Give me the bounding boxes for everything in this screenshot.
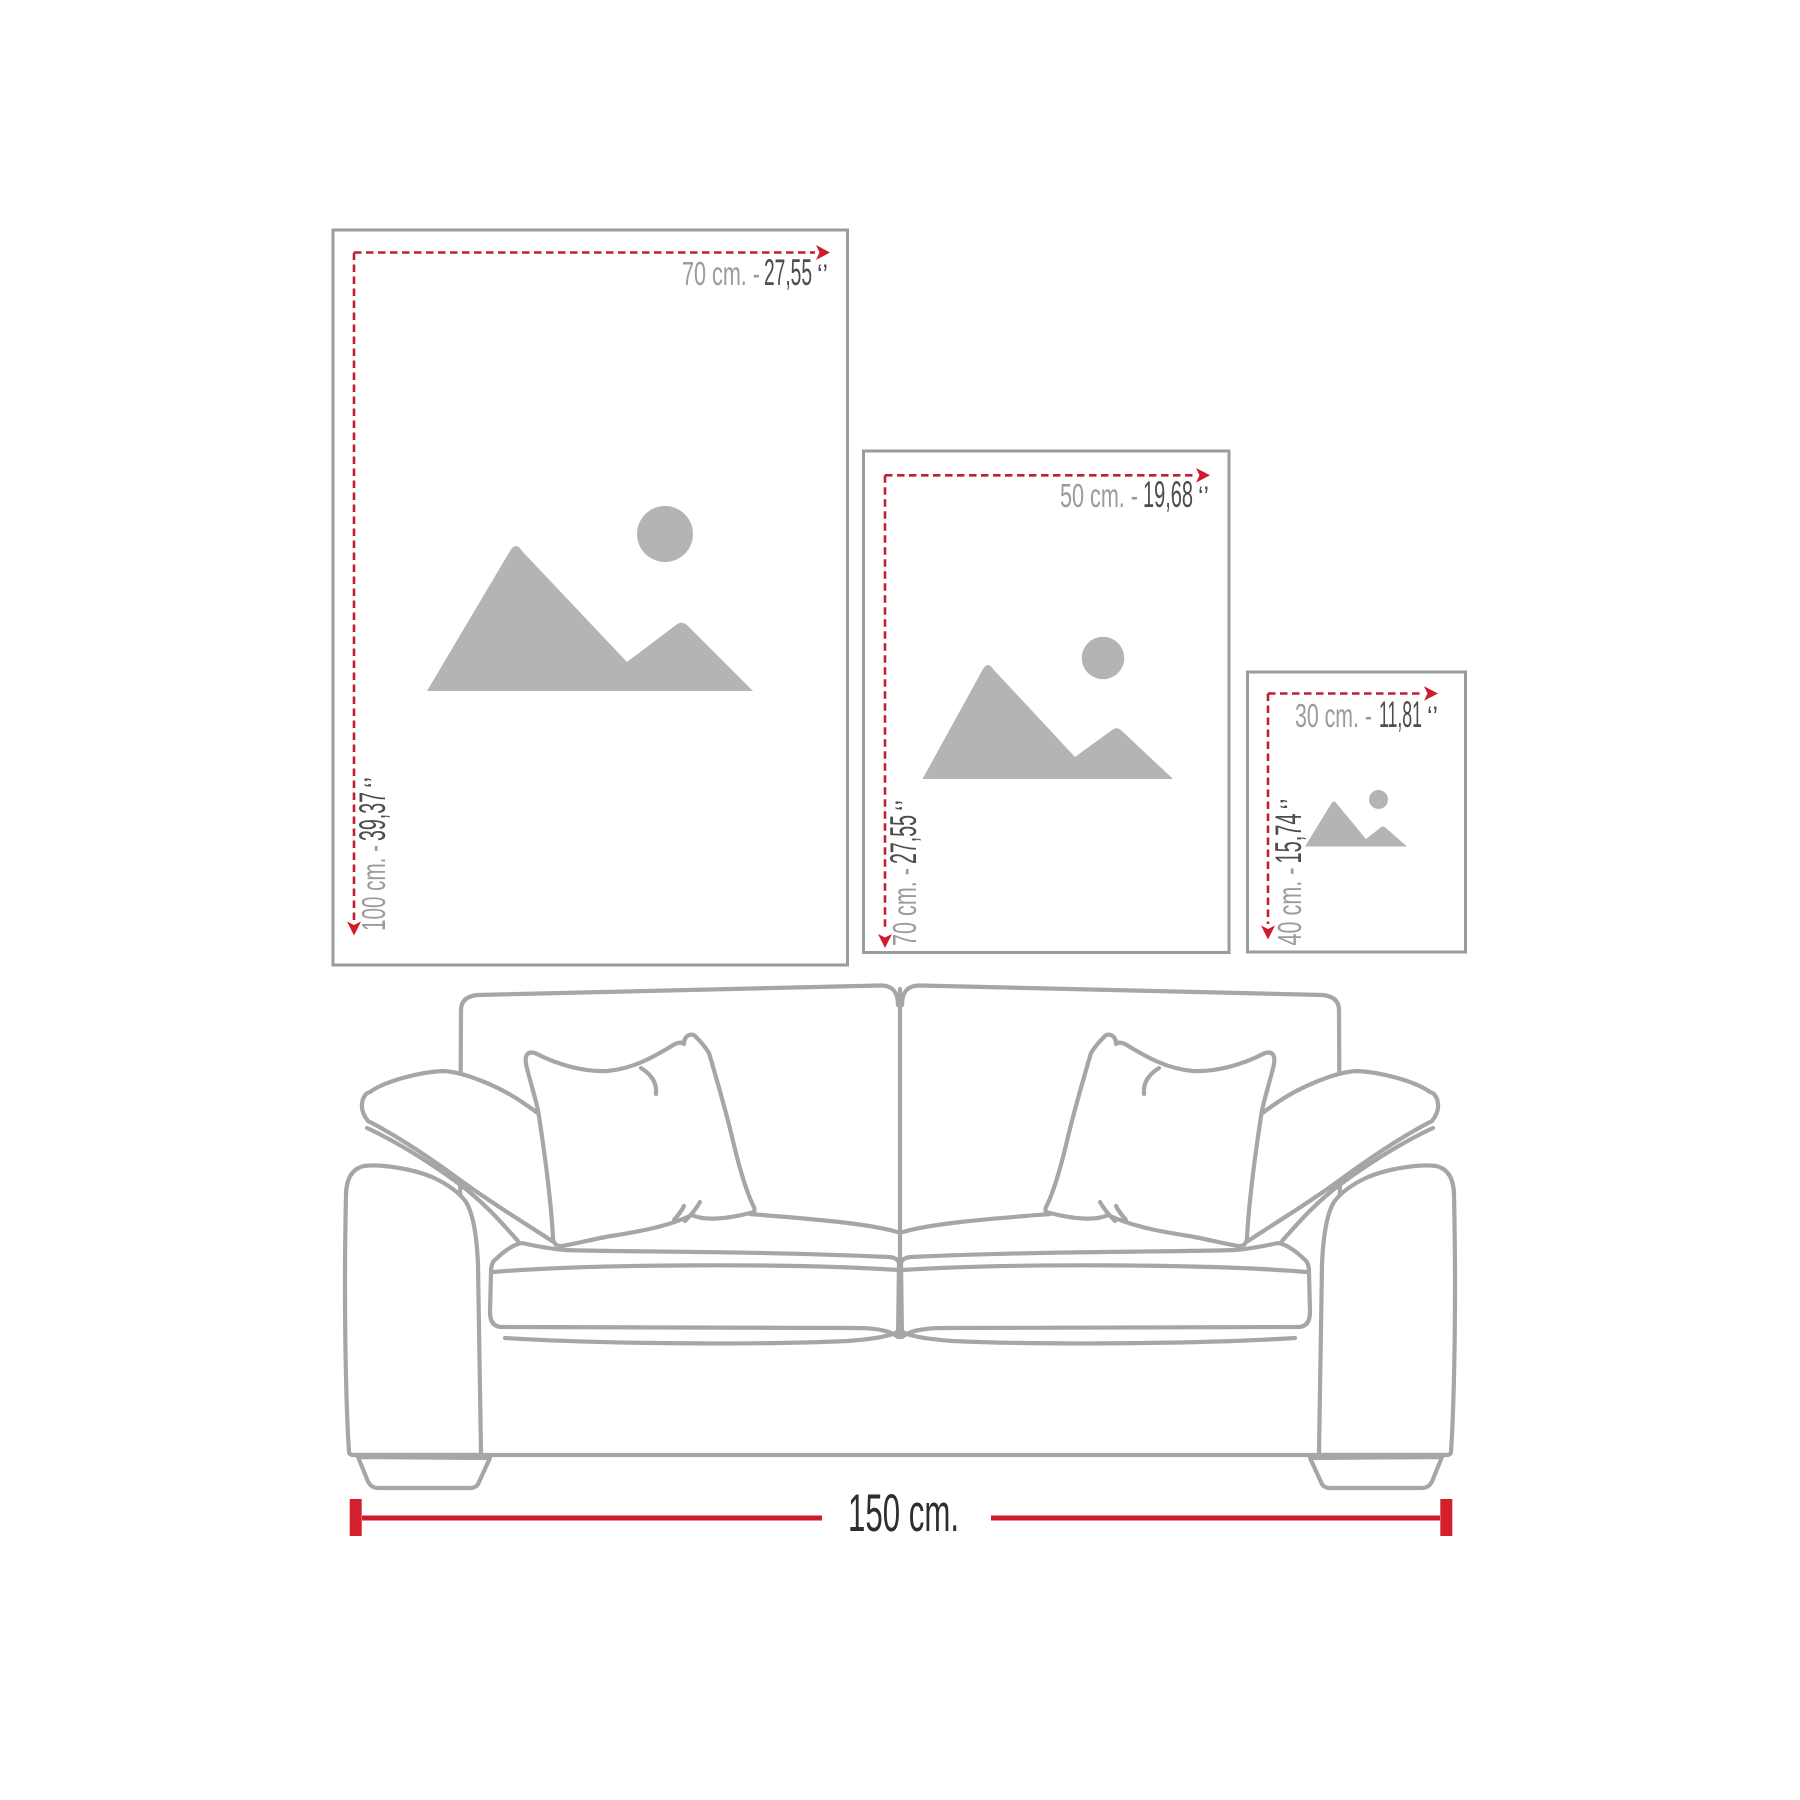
svg-text:39,37: 39,37 xyxy=(352,792,393,841)
svg-text:150 cm.: 150 cm. xyxy=(848,1484,959,1543)
svg-text:27,55: 27,55 xyxy=(764,252,812,293)
svg-text:‘’: ‘’ xyxy=(1198,481,1209,514)
svg-text:11,81: 11,81 xyxy=(1379,694,1422,735)
svg-text:70 cm. -: 70 cm. - xyxy=(886,868,923,946)
svg-text:‘’: ‘’ xyxy=(359,777,392,788)
svg-text:‘’: ‘’ xyxy=(1427,701,1438,734)
svg-text:‘’: ‘’ xyxy=(817,259,828,292)
svg-text:15,74: 15,74 xyxy=(1268,814,1309,864)
svg-text:‘’: ‘’ xyxy=(890,800,923,811)
svg-text:19,68: 19,68 xyxy=(1143,474,1193,515)
svg-text:27,55: 27,55 xyxy=(883,815,924,864)
svg-text:50 cm. -: 50 cm. - xyxy=(1060,477,1138,514)
svg-text:‘’: ‘’ xyxy=(1275,799,1308,810)
svg-text:40 cm. -: 40 cm. - xyxy=(1271,868,1308,946)
svg-text:100 cm. -: 100 cm. - xyxy=(355,845,392,931)
svg-text:30 cm. -: 30 cm. - xyxy=(1295,697,1372,734)
svg-text:70 cm. -: 70 cm. - xyxy=(682,255,760,292)
